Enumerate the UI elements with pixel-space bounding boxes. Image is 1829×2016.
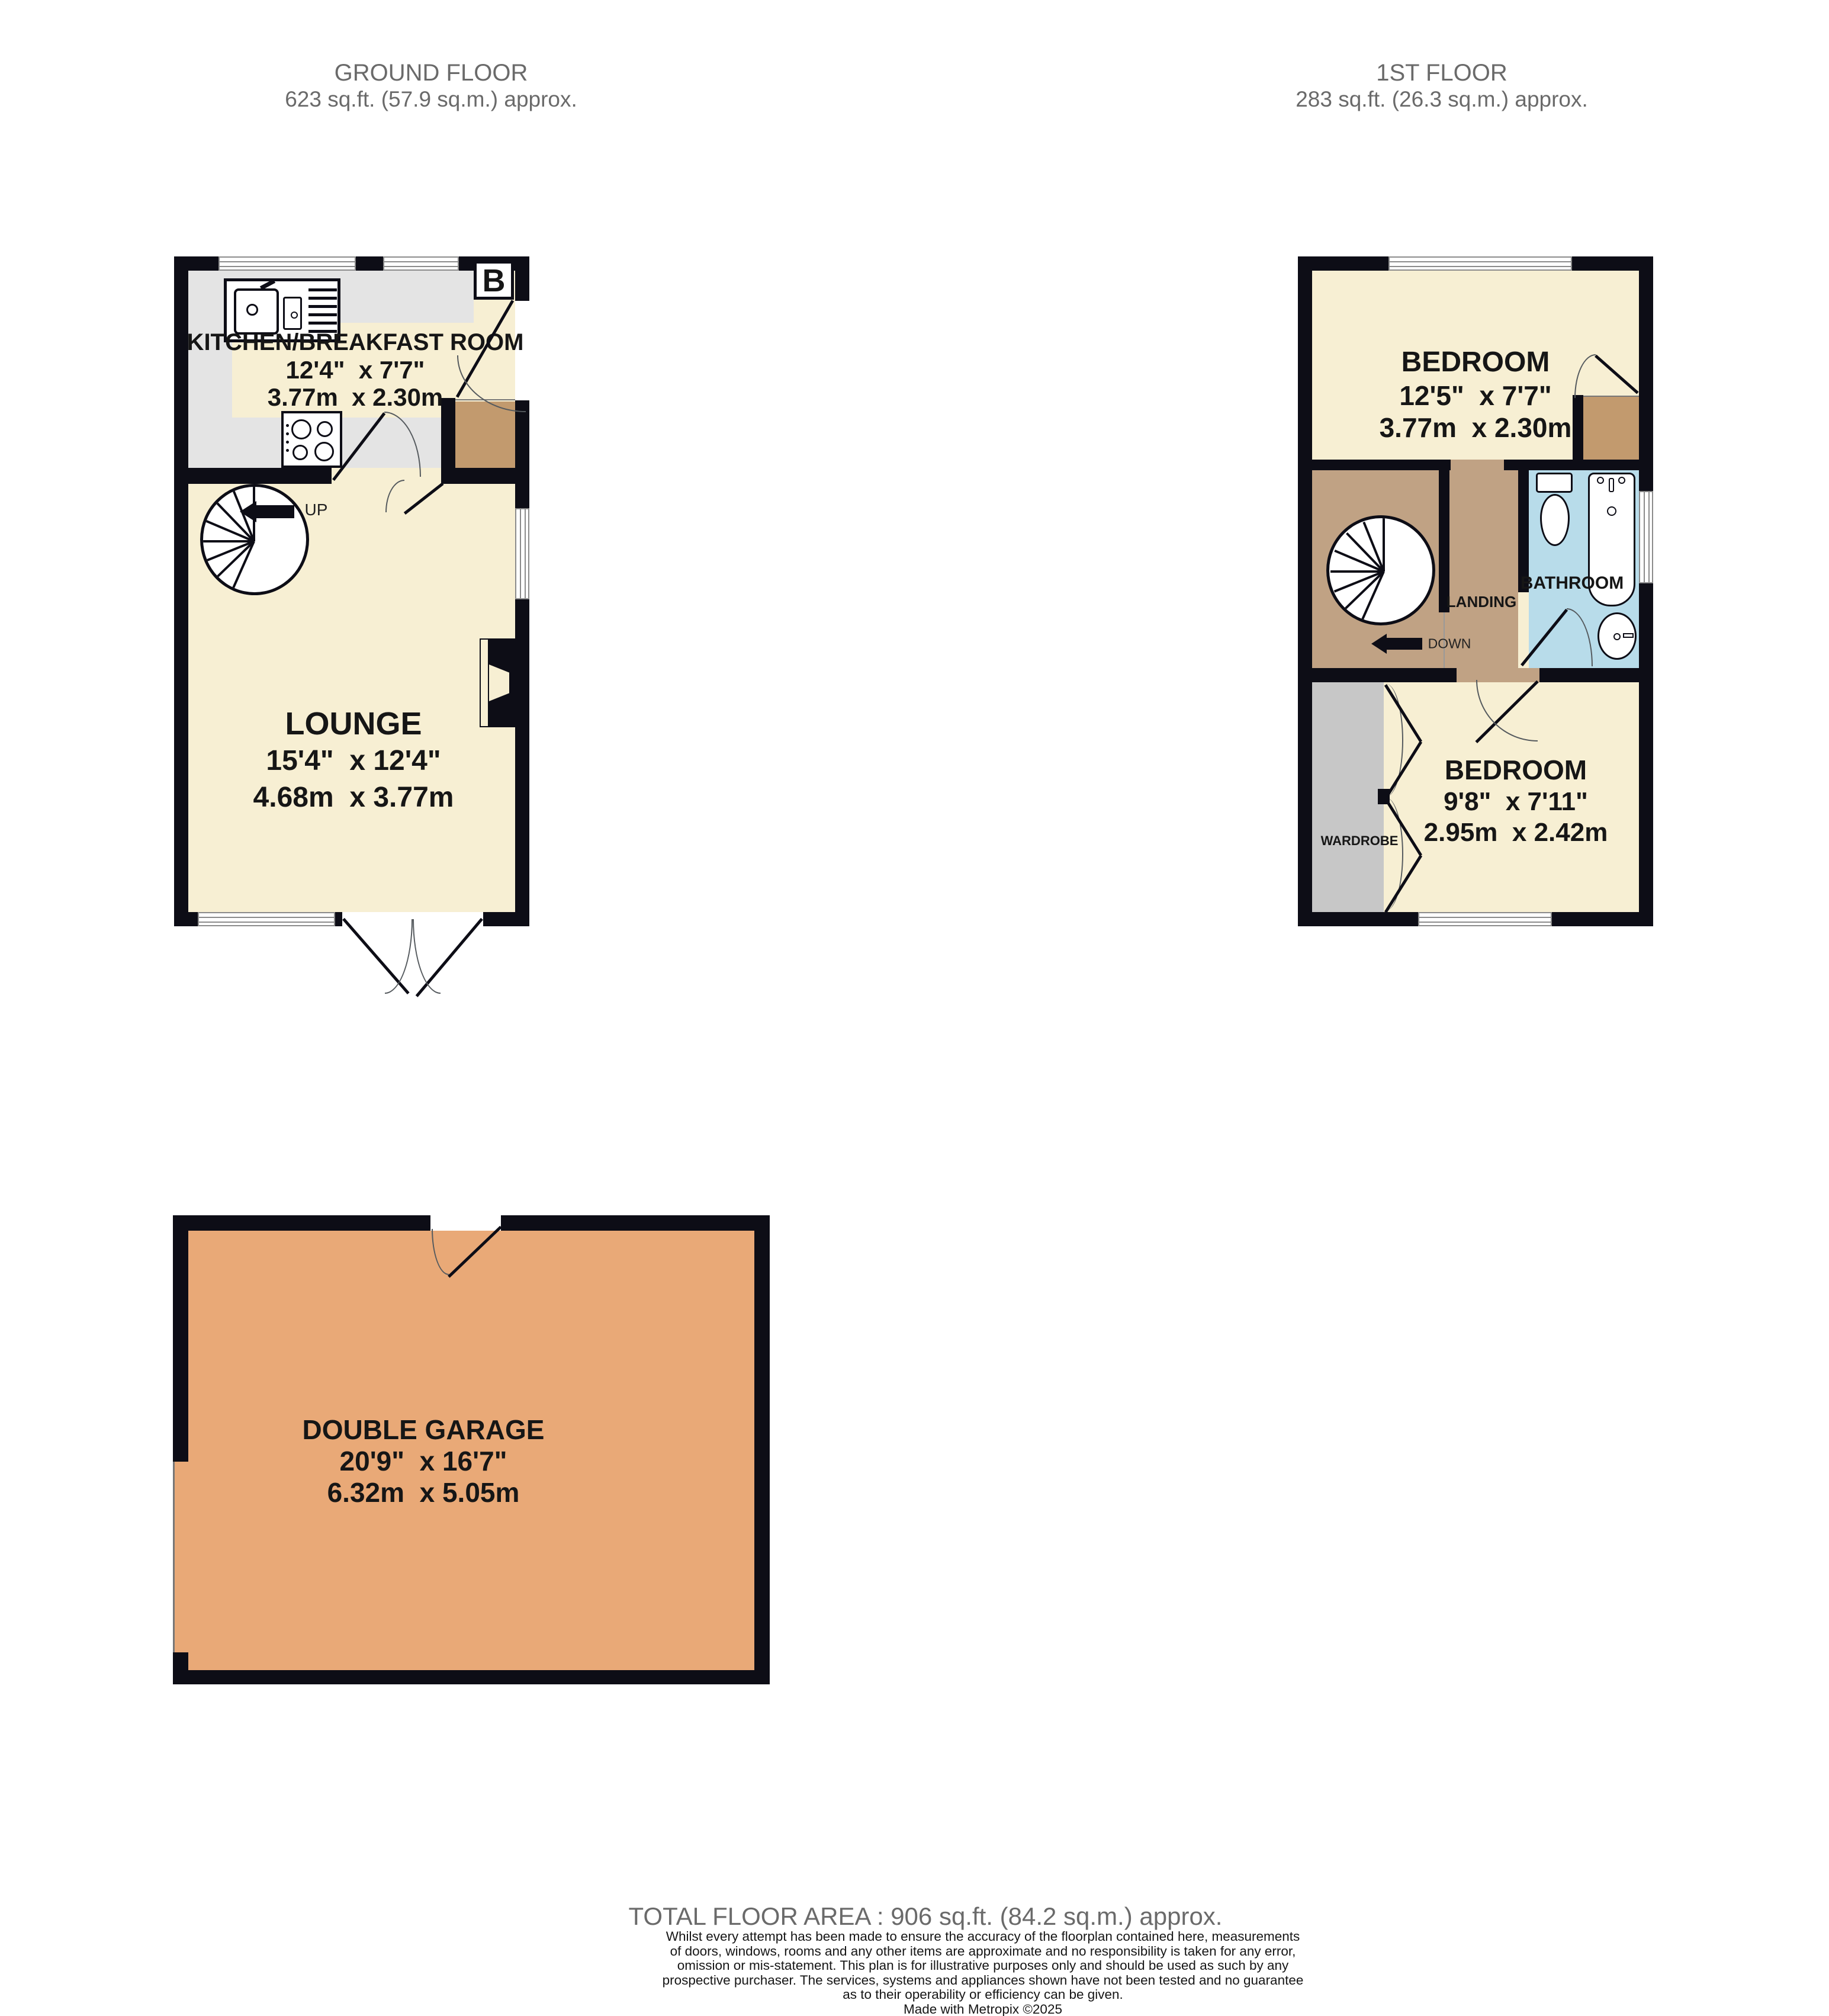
- bedroom-front-label: BEDROOM: [1402, 348, 1550, 377]
- wall-segment: [1539, 668, 1653, 682]
- stair-tread: [1346, 532, 1384, 573]
- wall-segment: [441, 398, 455, 468]
- burner: [291, 419, 311, 439]
- landing-opening: [1451, 460, 1504, 470]
- down-label: DOWN: [1428, 637, 1471, 651]
- wall-segment: [173, 1215, 188, 1462]
- bedroom-back-dims-imperial: 9'8" x 7'11": [1444, 789, 1588, 815]
- hearth: [480, 638, 489, 727]
- hob-icon: [281, 411, 342, 468]
- wall-segment: [441, 468, 529, 484]
- disclaimer: Whilst every attempt has been made to en…: [568, 1930, 1397, 2016]
- hob-knob: [286, 424, 289, 427]
- wall-segment: [173, 1652, 188, 1684]
- kitchen-dims-metric: 3.77m x 2.30m: [268, 385, 443, 410]
- bathroom-label: BATHROOM: [1521, 574, 1624, 592]
- bedroom-front-dims-imperial: 12'5" x 7'7": [1399, 382, 1551, 409]
- boiler-box: B: [474, 261, 514, 300]
- disclaimer-line: omission or mis-statement. This plan is …: [568, 1959, 1397, 1973]
- disclaimer-line: Whilst every attempt has been made to en…: [568, 1930, 1397, 1944]
- wall-segment: [1298, 256, 1312, 926]
- burner: [292, 445, 308, 460]
- window: [218, 256, 356, 271]
- wall-segment: [754, 1215, 770, 1684]
- wall-segment: [1439, 470, 1449, 612]
- burner: [314, 442, 334, 461]
- wall-segment: [173, 1670, 770, 1684]
- disclaimer-line: of doors, windows, rooms and any other i…: [568, 1944, 1397, 1959]
- sink-drain: [246, 304, 258, 316]
- wall-segment: [1298, 460, 1451, 470]
- toilet-tank: [1536, 473, 1573, 493]
- stair-tread: [1383, 518, 1385, 572]
- metropix-credit: Made with Metropix ©2025: [568, 2002, 1397, 2016]
- bath-spout: [1609, 478, 1614, 492]
- up-label: UP: [305, 502, 328, 518]
- window: [383, 256, 459, 271]
- bedroom-front-dims-metric: 3.77m x 2.30m: [1380, 414, 1572, 441]
- stair-tread: [1345, 571, 1385, 609]
- door-arc: [413, 919, 441, 994]
- bath-tap: [1618, 477, 1625, 484]
- basin-icon: [1597, 612, 1637, 660]
- floorplan-page: GROUND FLOOR 623 sq.ft. (57.9 sq.m.) app…: [0, 0, 1829, 2016]
- entrance-threshold: [455, 402, 515, 468]
- window: [1418, 912, 1552, 926]
- window: [1639, 491, 1653, 583]
- first-floor-title: 1ST FLOOR: [1235, 59, 1649, 86]
- basin-tap: [1623, 633, 1634, 638]
- landing-label: LANDING: [1447, 594, 1516, 609]
- down-arrow-head-icon: [1371, 634, 1387, 654]
- window: [198, 912, 335, 926]
- hob-knob: [286, 441, 289, 444]
- basin-drain: [1613, 633, 1621, 640]
- wall-segment: [1573, 395, 1583, 460]
- total-floor-area: TOTAL FLOOR AREA : 906 sq.ft. (84.2 sq.m…: [541, 1902, 1310, 1931]
- drain-dot: [291, 312, 298, 319]
- wall-segment: [1298, 668, 1457, 682]
- garage-floor: [175, 1462, 188, 1652]
- wall-segment: [174, 468, 332, 484]
- garage-label: DOUBLE GARAGE: [303, 1416, 545, 1443]
- kitchen-label: KITCHEN/BREAKFAST ROOM: [187, 330, 524, 354]
- stair-tread: [214, 541, 255, 580]
- kitchen-dims-imperial: 12'4" x 7'7": [286, 358, 425, 383]
- lounge-label: LOUNGE: [285, 708, 422, 740]
- lounge-dims-metric: 4.68m x 3.77m: [253, 784, 454, 812]
- bedroom-back-label: BEDROOM: [1445, 756, 1587, 784]
- door-arc: [385, 919, 413, 994]
- lounge-dims-imperial: 15'4" x 12'4": [266, 747, 441, 775]
- wall-segment: [174, 256, 188, 926]
- open-side-line: [173, 1462, 175, 1652]
- hob-knob: [286, 432, 289, 435]
- garage-dims-metric: 6.32m x 5.05m: [327, 1479, 520, 1506]
- first-floor-area: 283 sq.ft. (26.3 sq.m.) approx.: [1235, 86, 1649, 113]
- wardrobe-floor: [1312, 682, 1384, 912]
- drainer-lines: [308, 288, 337, 336]
- first-floor-header: 1ST FLOOR 283 sq.ft. (26.3 sq.m.) approx…: [1235, 59, 1649, 113]
- ground-floor-area: 623 sq.ft. (57.9 sq.m.) approx.: [224, 86, 638, 113]
- bedroom-threshold: [1583, 397, 1639, 460]
- up-arrow-shaft: [256, 505, 294, 518]
- up-arrow-head-icon: [240, 501, 256, 522]
- stair-tread: [200, 540, 254, 542]
- bath-drain: [1607, 506, 1616, 516]
- down-arrow-shaft: [1387, 638, 1422, 650]
- window: [515, 508, 529, 599]
- window: [1388, 256, 1572, 271]
- wardrobe-handle: [1378, 789, 1390, 804]
- boiler-label: B: [483, 265, 506, 297]
- garage-dims-imperial: 20'9" x 16'7": [340, 1447, 507, 1475]
- stair-tread: [1330, 570, 1384, 573]
- ground-floor-title: GROUND FLOOR: [224, 59, 638, 86]
- hob-knob: [286, 449, 289, 452]
- disclaimer-line: as to their operability or efficiency ca…: [568, 1988, 1397, 2002]
- ground-floor-header: GROUND FLOOR 623 sq.ft. (57.9 sq.m.) app…: [224, 59, 638, 113]
- spiral-staircase: [1326, 515, 1435, 625]
- sink-half-basin: [283, 297, 302, 330]
- bedroom-back-dims-metric: 2.95m x 2.42m: [1424, 820, 1608, 846]
- burner: [317, 421, 333, 437]
- wardrobe-label: WARDROBE: [1321, 834, 1399, 848]
- bath-tap: [1597, 477, 1604, 484]
- wall-segment: [1504, 460, 1653, 470]
- disclaimer-line: prospective purchaser. The services, sys…: [568, 1973, 1397, 1988]
- wall-segment: [1639, 256, 1653, 926]
